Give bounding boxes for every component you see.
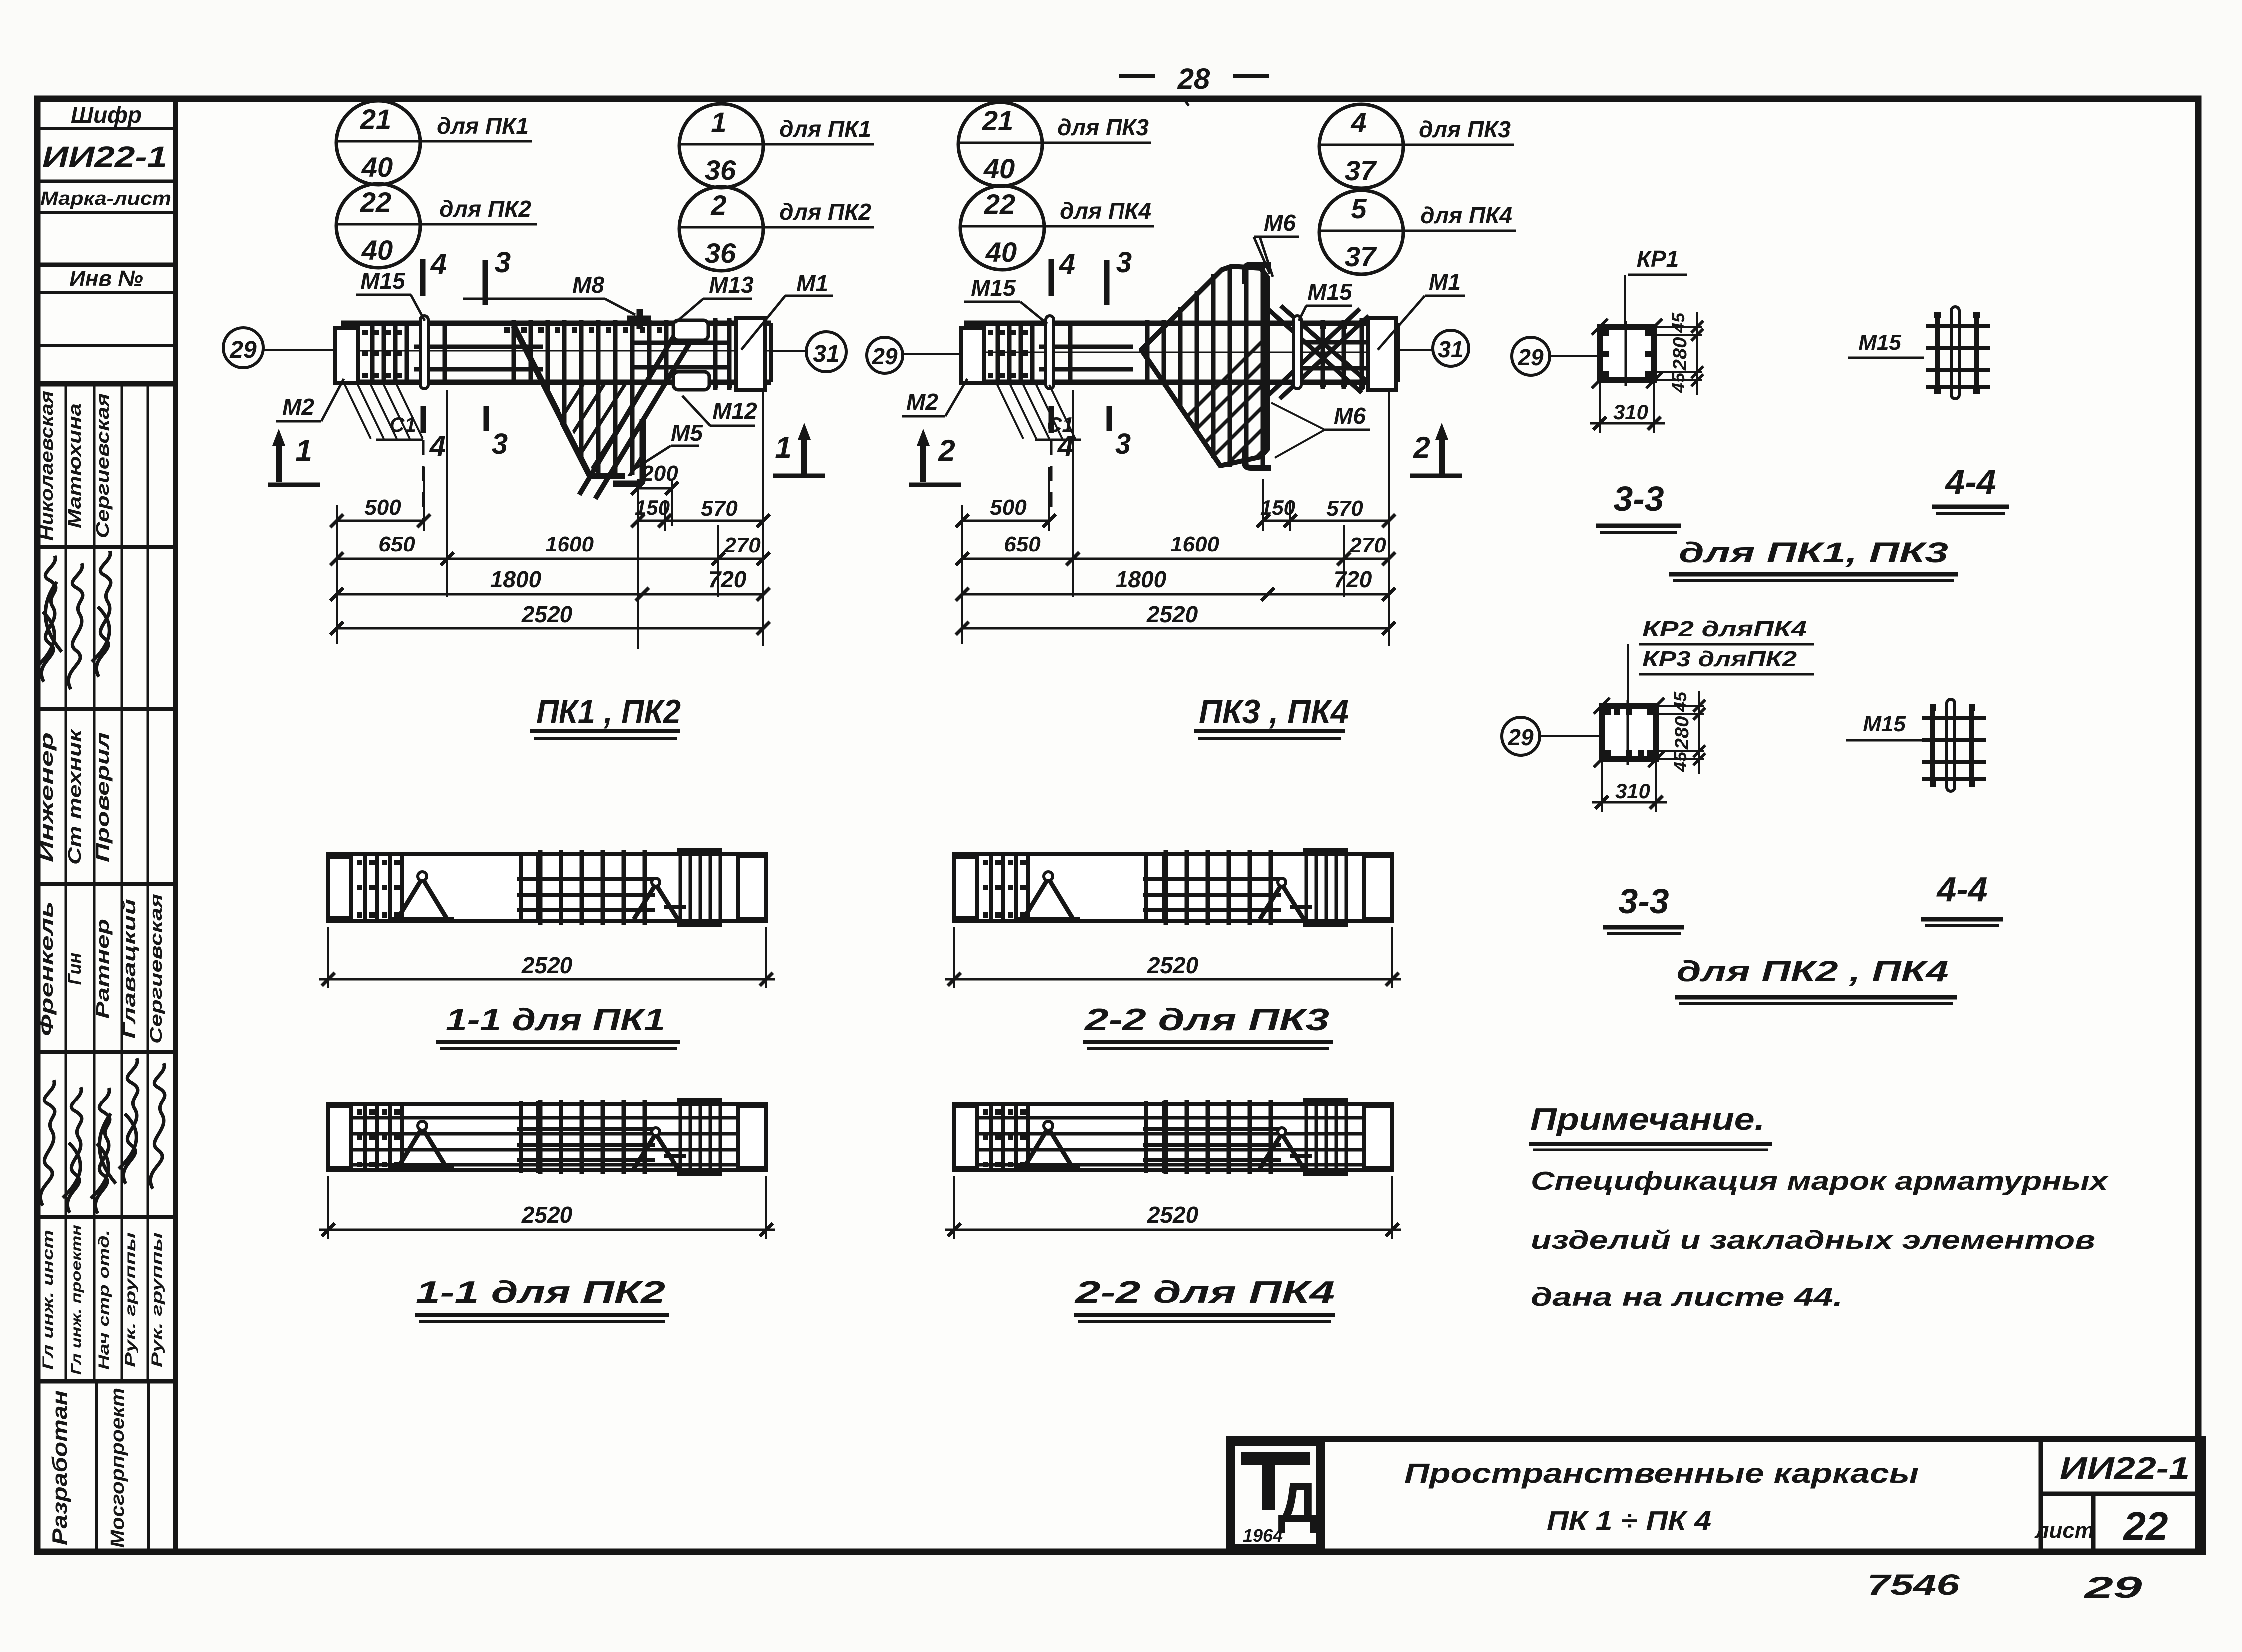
svg-text:М6: М6: [1264, 210, 1296, 236]
svg-text:Д: Д: [1278, 1471, 1318, 1534]
svg-text:45: 45: [1668, 312, 1688, 333]
svg-text:45: 45: [1670, 691, 1690, 712]
svg-text:для ПК4: для ПК4: [1060, 198, 1151, 224]
svg-text:36: 36: [705, 237, 736, 269]
svg-text:лист: лист: [2034, 1518, 2094, 1543]
svg-text:4-4: 4-4: [1936, 870, 1987, 909]
svg-text:М15: М15: [1858, 330, 1901, 355]
svg-text:29: 29: [2084, 1571, 2143, 1604]
svg-text:М6: М6: [1334, 403, 1366, 429]
svg-text:3: 3: [492, 428, 508, 460]
svg-text:21: 21: [982, 105, 1013, 136]
svg-text:1: 1: [775, 431, 791, 464]
svg-text:4: 4: [1059, 248, 1075, 280]
svg-text:М15: М15: [1863, 712, 1906, 736]
svg-text:Рук. группы: Рук. группы: [122, 1232, 139, 1367]
svg-text:Проверил: Проверил: [92, 732, 113, 862]
svg-text:29: 29: [229, 337, 257, 363]
svg-text:200: 200: [641, 461, 678, 486]
svg-text:720: 720: [1334, 566, 1372, 592]
svg-text:Шифр: Шифр: [71, 102, 142, 128]
svg-text:КР1: КР1: [1637, 246, 1679, 272]
svg-text:для ПК1, ПК3: для ПК1, ПК3: [1679, 537, 1948, 569]
svg-text:37: 37: [1345, 155, 1377, 186]
svg-text:3: 3: [1115, 428, 1131, 460]
svg-text:4: 4: [429, 430, 446, 462]
svg-text:1600: 1600: [1170, 532, 1219, 556]
svg-text:Примечание.: Примечание.: [1530, 1102, 1765, 1137]
svg-text:500: 500: [990, 495, 1027, 520]
svg-text:280: 280: [1669, 337, 1691, 371]
svg-text:4-4: 4-4: [1944, 462, 1996, 501]
svg-text:М1: М1: [796, 270, 828, 296]
svg-text:570: 570: [1326, 496, 1363, 521]
svg-text:Гл инж. проектн: Гл инж. проектн: [68, 1225, 84, 1375]
svg-text:3: 3: [495, 246, 511, 279]
svg-text:М1: М1: [1429, 269, 1461, 295]
svg-text:2520: 2520: [1146, 601, 1198, 627]
svg-text:1: 1: [711, 106, 726, 138]
svg-text:Рук. группы: Рук. группы: [149, 1232, 165, 1367]
svg-text:КР2 дляПК4: КР2 дляПК4: [1642, 617, 1807, 641]
svg-text:22: 22: [984, 188, 1015, 220]
svg-text:40: 40: [985, 236, 1017, 268]
svg-text:310: 310: [1615, 779, 1650, 803]
svg-text:4: 4: [1350, 107, 1366, 138]
svg-text:1-1 для ПК2: 1-1 для ПК2: [416, 1275, 665, 1310]
svg-text:270: 270: [723, 533, 761, 557]
svg-text:М2: М2: [906, 389, 938, 415]
svg-text:ИИ22-1: ИИ22-1: [2060, 1451, 2190, 1486]
svg-text:Сергиевская: Сергиевская: [92, 393, 113, 538]
svg-text:М15: М15: [360, 268, 406, 294]
svg-text:Главацкий: Главацкий: [119, 899, 139, 1039]
svg-text:2520: 2520: [1147, 1202, 1199, 1228]
svg-text:М12: М12: [712, 398, 757, 424]
svg-text:КР3 дляПК2: КР3 дляПК2: [1642, 647, 1797, 671]
svg-text:М15: М15: [971, 275, 1016, 301]
svg-text:изделий и закладных элемент: изделий и закладных элементов: [1531, 1226, 2095, 1255]
svg-text:Инв №: Инв №: [69, 266, 143, 291]
svg-text:Сергиевская: Сергиевская: [147, 894, 166, 1044]
svg-text:Гл инж. инст: Гл инж. инст: [40, 1230, 56, 1370]
svg-text:Спецификация марок армат: Спецификация марок арматурных: [1531, 1167, 2109, 1196]
svg-text:1-1 для ПК1: 1-1 для ПК1: [446, 1003, 665, 1037]
svg-text:3-3: 3-3: [1618, 882, 1669, 921]
svg-text:Ст техник: Ст техник: [64, 729, 85, 865]
svg-text:2-2 для ПК3: 2-2 для ПК3: [1084, 1003, 1329, 1037]
svg-text:270: 270: [1349, 533, 1386, 557]
svg-text:для ПК2 , ПК4: для ПК2 , ПК4: [1677, 955, 1949, 988]
svg-text:Френкель: Френкель: [36, 901, 57, 1036]
svg-text:29: 29: [1517, 344, 1544, 370]
svg-text:Николаевская: Николаевская: [36, 391, 57, 541]
svg-text:1600: 1600: [545, 532, 594, 556]
svg-text:3-3: 3-3: [1613, 479, 1664, 518]
svg-text:720: 720: [708, 566, 747, 592]
svg-text:150: 150: [635, 496, 670, 519]
svg-text:45: 45: [1668, 372, 1688, 393]
svg-text:ИИ22-1: ИИ22-1: [42, 141, 167, 173]
svg-text:С1: С1: [389, 413, 416, 436]
svg-text:2520: 2520: [521, 1202, 573, 1228]
svg-text:40: 40: [361, 234, 393, 266]
svg-text:650: 650: [1004, 532, 1041, 556]
svg-text:ПК1 , ПК2: ПК1 , ПК2: [536, 693, 681, 731]
svg-text:С1: С1: [1047, 413, 1074, 436]
svg-text:для ПК2: для ПК2: [779, 199, 871, 225]
svg-text:для ПК1: для ПК1: [437, 113, 529, 139]
svg-text:М8: М8: [572, 272, 604, 298]
svg-text:2: 2: [938, 434, 955, 467]
svg-text:3: 3: [1116, 246, 1132, 279]
svg-text:Инженер: Инженер: [36, 732, 57, 862]
svg-text:М15: М15: [1307, 279, 1353, 305]
svg-text:1: 1: [295, 434, 312, 467]
svg-text:40: 40: [983, 153, 1015, 184]
svg-text:Матюхина: Матюхина: [64, 403, 85, 528]
svg-text:дана на листе 44.: дана на листе 44.: [1531, 1283, 1843, 1312]
svg-text:22: 22: [2123, 1504, 2168, 1548]
svg-text:2520: 2520: [521, 601, 573, 627]
svg-text:29: 29: [871, 343, 898, 369]
svg-text:1800: 1800: [490, 566, 542, 592]
svg-text:29: 29: [1507, 724, 1534, 750]
svg-text:4: 4: [430, 248, 447, 280]
svg-text:150: 150: [1260, 496, 1295, 519]
svg-text:ПК 1 ÷ ПК 4: ПК 1 ÷ ПК 4: [1547, 1506, 1711, 1536]
svg-text:Гин: Гин: [64, 953, 85, 985]
svg-text:ПК3 , ПК4: ПК3 , ПК4: [1199, 693, 1349, 731]
svg-text:для ПК4: для ПК4: [1420, 202, 1512, 228]
svg-text:28: 28: [1177, 63, 1210, 95]
svg-text:40: 40: [361, 151, 393, 183]
svg-text:М2: М2: [282, 394, 314, 420]
svg-text:2520: 2520: [1147, 952, 1199, 978]
svg-text:650: 650: [378, 532, 415, 556]
svg-text:1964: 1964: [1243, 1525, 1283, 1546]
svg-text:21: 21: [360, 103, 391, 135]
svg-text:45: 45: [1670, 751, 1690, 772]
svg-text:7546: 7546: [1867, 1569, 1960, 1601]
svg-text:310: 310: [1613, 400, 1648, 424]
svg-text:Марка-лист: Марка-лист: [40, 188, 171, 209]
svg-text:2: 2: [710, 189, 726, 221]
svg-text:2: 2: [1413, 431, 1430, 464]
svg-text:Ратнер: Ратнер: [92, 919, 113, 1019]
svg-text:280: 280: [1671, 716, 1693, 750]
svg-text:для ПК1: для ПК1: [779, 116, 871, 142]
svg-text:для ПК3: для ПК3: [1057, 114, 1149, 140]
svg-text:М5: М5: [671, 420, 703, 446]
svg-text:31: 31: [1438, 336, 1463, 362]
svg-text:2-2 для ПК4: 2-2 для ПК4: [1075, 1275, 1335, 1310]
svg-text:37: 37: [1345, 241, 1377, 272]
svg-text:1800: 1800: [1116, 566, 1167, 592]
svg-text:570: 570: [701, 496, 738, 521]
svg-text:500: 500: [364, 495, 401, 520]
svg-text:Разработан: Разработан: [48, 1390, 71, 1545]
svg-text:Нач стр отд.: Нач стр отд.: [96, 1230, 112, 1370]
svg-text:для ПК3: для ПК3: [1419, 116, 1511, 142]
svg-text:22: 22: [360, 186, 391, 218]
svg-text:М13: М13: [709, 272, 754, 298]
svg-text:Мосгорпроект: Мосгорпроект: [107, 1388, 128, 1548]
svg-text:36: 36: [705, 154, 736, 186]
svg-text:Пространственные каркасы: Пространственные каркасы: [1404, 1457, 1919, 1489]
svg-text:5: 5: [1351, 193, 1367, 224]
svg-text:31: 31: [813, 341, 839, 367]
svg-text:для ПК2: для ПК2: [439, 196, 531, 222]
svg-text:2520: 2520: [521, 952, 573, 978]
